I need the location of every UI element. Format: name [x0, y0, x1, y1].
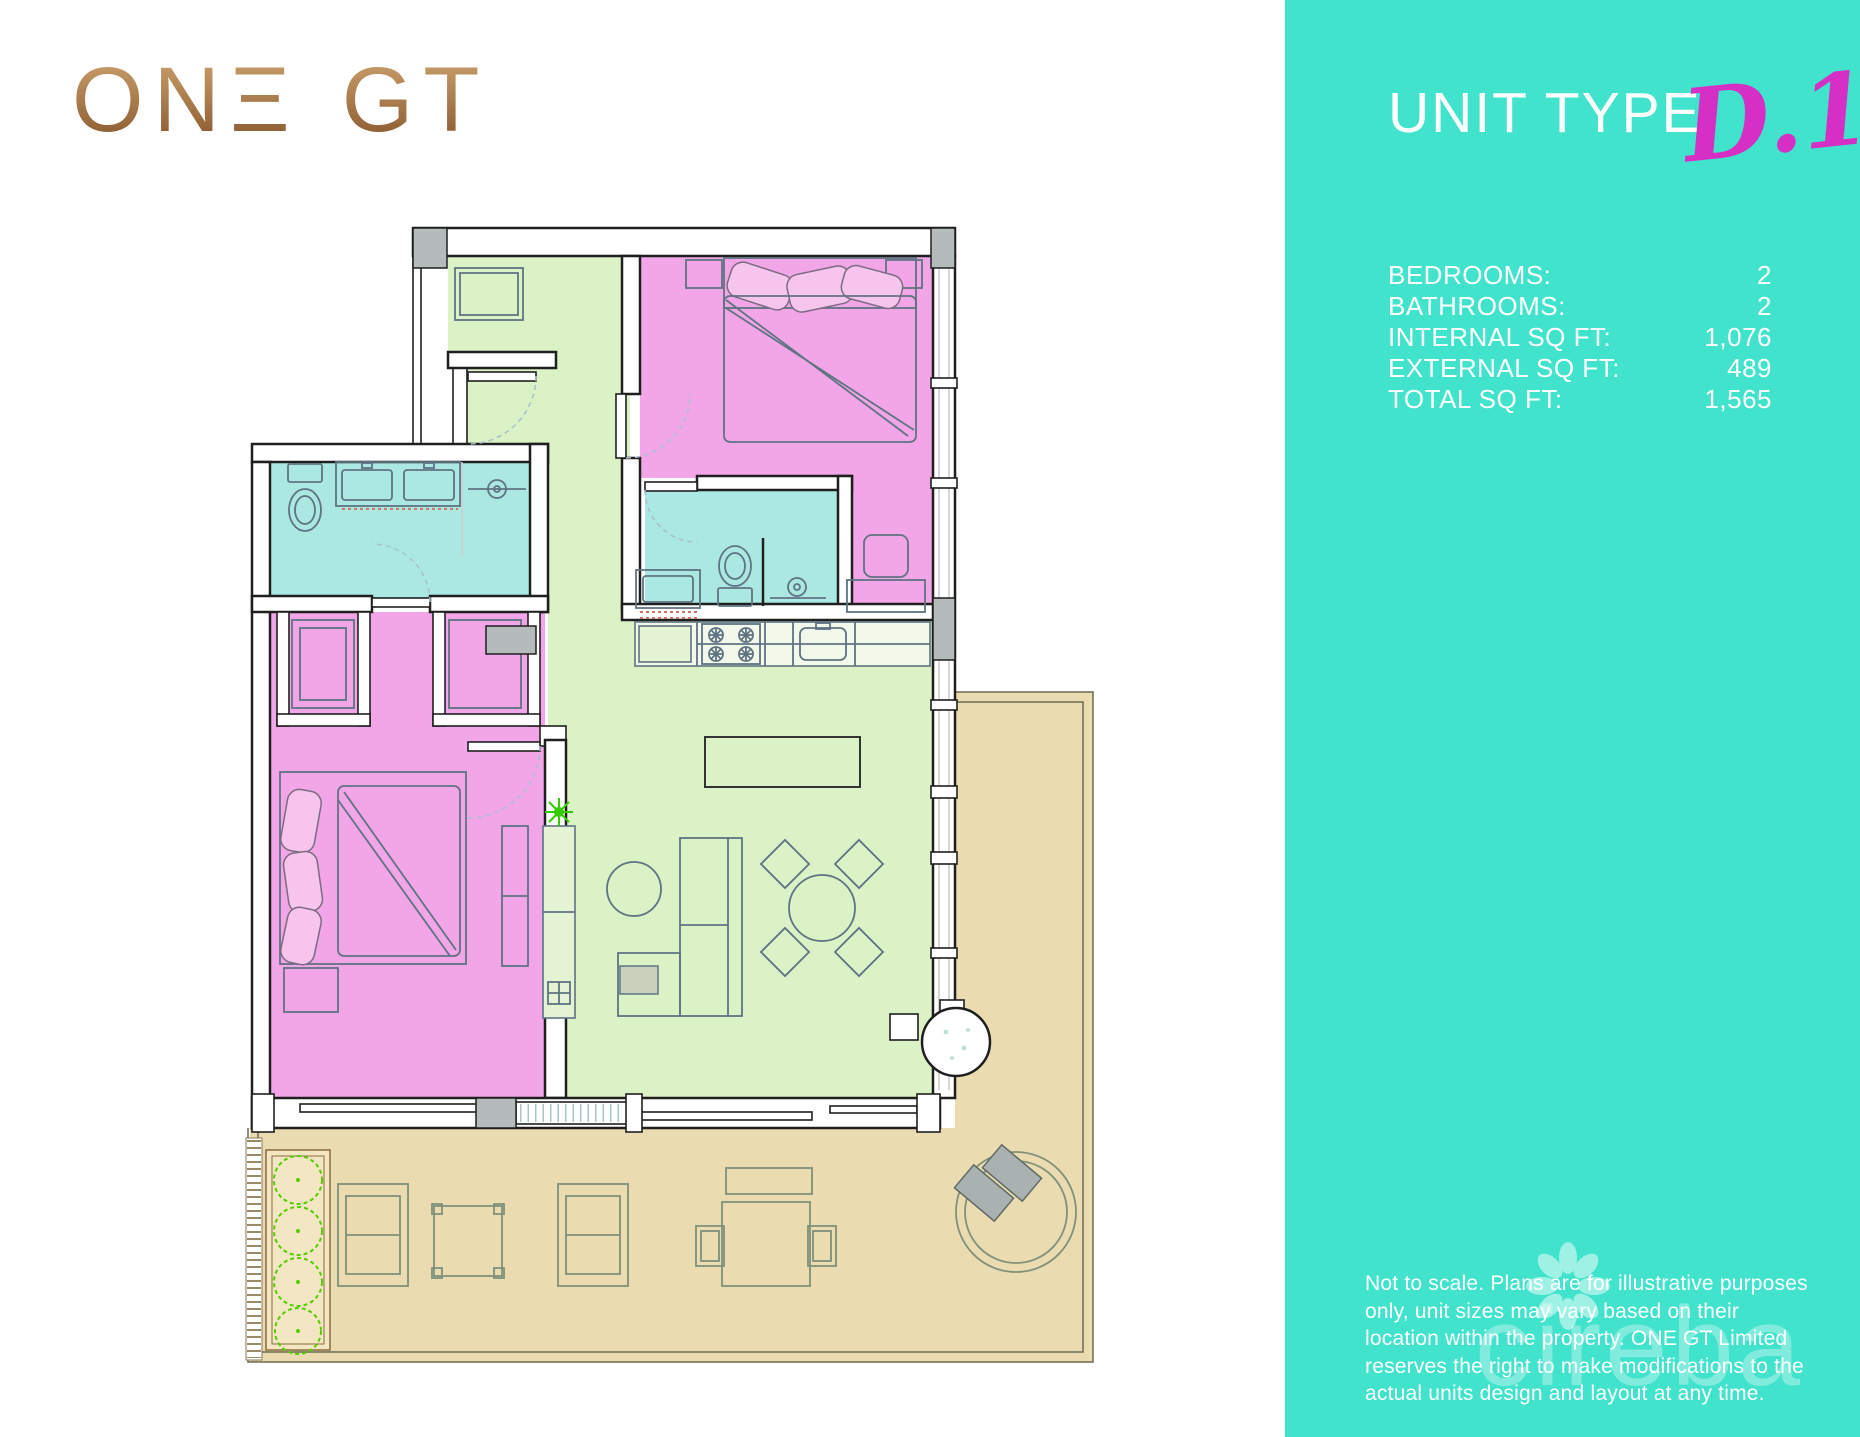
living-area	[566, 666, 933, 1098]
spec-label: BATHROOMS:	[1388, 291, 1566, 322]
fridge-icon	[639, 626, 691, 662]
window-wall-icon	[931, 256, 957, 1098]
spec-value: 489	[1727, 353, 1772, 384]
spec-row-external-sqft: EXTERNAL SQ FT: 489	[1388, 353, 1772, 384]
spec-row-bathrooms: BATHROOMS: 2	[1388, 291, 1772, 322]
spec-value: 2	[1757, 260, 1772, 291]
spec-value: 2	[1757, 291, 1772, 322]
kitchen-counter	[635, 618, 930, 666]
spec-value: 1,076	[1704, 322, 1772, 353]
spec-label: BEDROOMS:	[1388, 260, 1551, 291]
bedroom-1-door-icon	[468, 742, 540, 751]
spec-label: TOTAL SQ FT:	[1388, 384, 1563, 415]
column-icon	[413, 228, 447, 268]
terrace-fence-icon	[246, 1138, 262, 1360]
bathroom-2-area	[645, 490, 838, 608]
disclaimer-text: Not to scale. Plans are for illustrative…	[1365, 1270, 1817, 1408]
spec-row-total-sqft: TOTAL SQ FT: 1,565	[1388, 384, 1772, 415]
spec-list: BEDROOMS: 2 BATHROOMS: 2 INTERNAL SQ FT:…	[1388, 260, 1772, 415]
spec-value: 1,565	[1704, 384, 1772, 415]
bathroom-1-door-icon	[372, 598, 430, 607]
spec-row-internal-sqft: INTERNAL SQ FT: 1,076	[1388, 322, 1772, 353]
unit-code: D.1	[1677, 49, 1860, 186]
spec-label: INTERNAL SQ FT:	[1388, 322, 1611, 353]
spec-row-bedrooms: BEDROOMS: 2	[1388, 260, 1772, 291]
info-panel: cireba UNIT TYPE D.1 BEDROOMS: 2 BATHROO…	[1285, 0, 1860, 1437]
planter-icon	[266, 1150, 330, 1354]
entry-area	[448, 256, 630, 355]
spec-label: EXTERNAL SQ FT:	[1388, 353, 1620, 384]
cireba-watermark: cireba	[1285, 0, 1860, 1437]
floor-plan	[0, 0, 1150, 1437]
bedroom-2-door-icon	[616, 394, 626, 458]
plant-icon	[545, 798, 573, 826]
bathroom-2-door-icon	[645, 482, 697, 491]
sliding-door-wall-icon	[252, 1094, 940, 1132]
column-icon	[933, 598, 955, 660]
column-icon	[931, 228, 955, 268]
entry-door-icon	[468, 372, 536, 381]
page-title: UNIT TYPE	[1388, 80, 1702, 146]
tv-console-icon	[543, 826, 575, 1018]
island-icon	[705, 737, 860, 787]
